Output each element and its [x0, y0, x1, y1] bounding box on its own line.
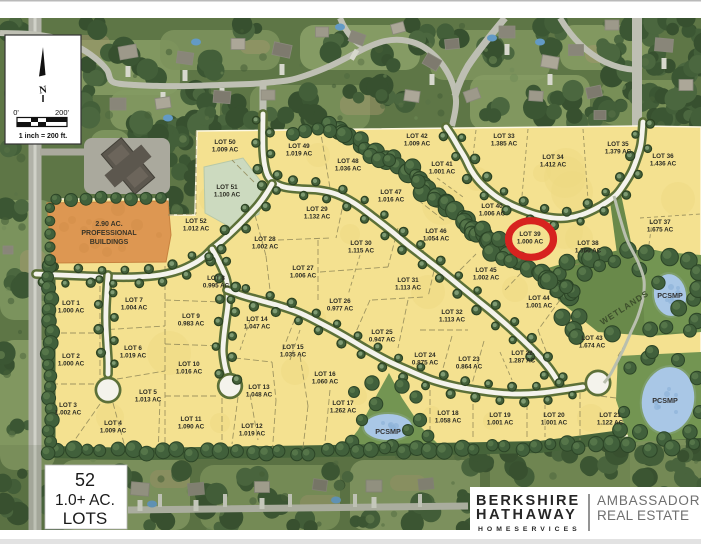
- svg-text:1.006 AC: 1.006 AC: [479, 211, 506, 218]
- svg-text:LOT 6: LOT 6: [124, 345, 142, 352]
- svg-text:0.977 AC: 0.977 AC: [327, 306, 354, 313]
- svg-text:LOT 48: LOT 48: [337, 158, 359, 165]
- svg-text:LOT 4: LOT 4: [104, 420, 122, 427]
- svg-text:LOT 19: LOT 19: [489, 412, 511, 419]
- svg-text:LOT 16: LOT 16: [314, 371, 336, 378]
- svg-text:LOTS: LOTS: [63, 509, 107, 528]
- svg-text:LOT 3: LOT 3: [59, 402, 77, 409]
- svg-text:LOT 34: LOT 34: [542, 154, 564, 161]
- svg-text:LOT 5: LOT 5: [139, 389, 157, 396]
- svg-text:LOT 37: LOT 37: [649, 219, 671, 226]
- svg-text:LOT 13: LOT 13: [248, 384, 270, 391]
- svg-text:1.002 AC: 1.002 AC: [55, 410, 82, 417]
- svg-text:1.412 AC: 1.412 AC: [540, 162, 567, 169]
- svg-text:1.100 AC: 1.100 AC: [214, 192, 241, 199]
- svg-text:1.002 AC: 1.002 AC: [473, 275, 500, 282]
- svg-text:52: 52: [75, 470, 95, 490]
- svg-text:1 inch = 200 ft.: 1 inch = 200 ft.: [19, 133, 67, 140]
- svg-text:1.016 AC: 1.016 AC: [176, 369, 203, 376]
- svg-text:1.002 AC: 1.002 AC: [252, 244, 279, 251]
- svg-text:1.009 AC: 1.009 AC: [100, 428, 127, 435]
- svg-text:1.019 AC: 1.019 AC: [120, 353, 147, 360]
- svg-text:LOT 30: LOT 30: [350, 240, 372, 247]
- svg-text:1.132 AC: 1.132 AC: [304, 214, 331, 221]
- svg-text:1.122 AC: 1.122 AC: [597, 420, 624, 427]
- svg-text:0.983 AC: 0.983 AC: [178, 321, 205, 328]
- svg-text:LOT 28: LOT 28: [254, 236, 276, 243]
- svg-text:1.674 AC: 1.674 AC: [579, 343, 606, 350]
- svg-text:LOT 33: LOT 33: [493, 133, 515, 140]
- svg-text:1.385 AC: 1.385 AC: [491, 141, 518, 148]
- svg-text:1.016 AC: 1.016 AC: [378, 197, 405, 204]
- svg-text:LOT 1: LOT 1: [62, 300, 80, 307]
- svg-text:LOT 21: LOT 21: [599, 412, 621, 419]
- svg-text:1.019 AC: 1.019 AC: [239, 431, 266, 438]
- svg-text:LOT 50: LOT 50: [214, 139, 236, 146]
- svg-text:1.012 AC: 1.012 AC: [183, 226, 210, 233]
- svg-text:1.004 AC: 1.004 AC: [121, 305, 148, 312]
- svg-text:1.0+ AC.: 1.0+ AC.: [55, 492, 115, 509]
- svg-text:1.009 AC: 1.009 AC: [404, 141, 431, 148]
- svg-text:1.054 AC: 1.054 AC: [423, 236, 450, 243]
- svg-text:AMBASSADOR: AMBASSADOR: [597, 493, 700, 508]
- svg-text:LOT 45: LOT 45: [475, 267, 497, 274]
- svg-text:LOT 51: LOT 51: [216, 184, 238, 191]
- svg-text:LOT 14: LOT 14: [246, 316, 268, 323]
- svg-text:LOT 10: LOT 10: [178, 361, 200, 368]
- svg-text:200': 200': [55, 108, 70, 117]
- svg-text:LOT 47: LOT 47: [380, 189, 402, 196]
- svg-text:HATHAWAY: HATHAWAY: [476, 507, 577, 523]
- svg-text:1.001 AC: 1.001 AC: [487, 420, 514, 427]
- svg-text:1.060 AC: 1.060 AC: [312, 379, 339, 386]
- svg-text:PCSMP: PCSMP: [375, 427, 401, 436]
- svg-text:REAL ESTATE: REAL ESTATE: [597, 508, 689, 523]
- svg-text:LOT 36: LOT 36: [652, 153, 674, 160]
- svg-text:1.113 AC: 1.113 AC: [395, 285, 421, 292]
- svg-text:1.287 AC: 1.287 AC: [509, 358, 536, 365]
- svg-text:LOT 26: LOT 26: [329, 298, 351, 305]
- svg-text:0.864 AC: 0.864 AC: [456, 364, 483, 371]
- svg-text:LOT 43: LOT 43: [581, 335, 603, 342]
- svg-text:1.013 AC: 1.013 AC: [135, 397, 162, 404]
- svg-text:1.113 AC: 1.113 AC: [439, 317, 465, 324]
- svg-text:1.001 AC: 1.001 AC: [429, 169, 456, 176]
- svg-text:LOT 49: LOT 49: [288, 143, 310, 150]
- svg-text:1.379 AC: 1.379 AC: [605, 149, 632, 156]
- svg-text:LOT 11: LOT 11: [181, 416, 202, 423]
- svg-text:1.036 AC: 1.036 AC: [335, 166, 362, 173]
- svg-text:LOT 41: LOT 41: [431, 161, 453, 168]
- svg-text:LOT 8: LOT 8: [207, 275, 225, 282]
- svg-text:1.001 AC: 1.001 AC: [526, 303, 553, 310]
- svg-text:LOT 22: LOT 22: [511, 350, 533, 357]
- svg-text:1.058 AC: 1.058 AC: [435, 418, 462, 425]
- svg-text:LOT 52: LOT 52: [185, 218, 207, 225]
- svg-text:1.000 AC: 1.000 AC: [58, 308, 85, 315]
- svg-text:2.90 AC.: 2.90 AC.: [95, 221, 122, 228]
- svg-text:PCSMP: PCSMP: [657, 291, 683, 300]
- svg-text:LOT 35: LOT 35: [607, 141, 629, 148]
- svg-text:0.947 AC: 0.947 AC: [369, 337, 396, 344]
- svg-text:LOT 31: LOT 31: [397, 277, 419, 284]
- svg-text:1.675 AC: 1.675 AC: [647, 227, 674, 234]
- svg-text:1.000 AC: 1.000 AC: [58, 361, 85, 368]
- svg-text:LOT 7: LOT 7: [125, 297, 143, 304]
- svg-text:1.000 AC: 1.000 AC: [517, 239, 544, 246]
- svg-text:BUILDINGS: BUILDINGS: [90, 239, 129, 246]
- svg-text:LOT 38: LOT 38: [577, 240, 599, 247]
- svg-text:PCSMP: PCSMP: [652, 396, 678, 405]
- svg-text:1.115 AC: 1.115 AC: [348, 248, 374, 255]
- svg-text:LOT 42: LOT 42: [406, 133, 428, 140]
- svg-text:0': 0': [13, 108, 19, 117]
- svg-text:LOT 20: LOT 20: [543, 412, 565, 419]
- svg-text:LOT 24: LOT 24: [414, 352, 436, 359]
- svg-text:0.995 AC: 0.995 AC: [203, 283, 230, 290]
- svg-text:HOMESERVICES: HOMESERVICES: [478, 526, 581, 533]
- svg-text:LOT 27: LOT 27: [292, 265, 314, 272]
- svg-text:1.048 AC: 1.048 AC: [246, 392, 273, 399]
- svg-text:1.035 AC: 1.035 AC: [280, 352, 307, 359]
- svg-text:1.262 AC: 1.262 AC: [330, 408, 357, 415]
- svg-text:1.006 AC: 1.006 AC: [290, 273, 317, 280]
- svg-text:LOT 23: LOT 23: [458, 356, 480, 363]
- svg-text:LOT 17: LOT 17: [332, 400, 354, 407]
- svg-text:1.019 AC: 1.019 AC: [286, 151, 313, 158]
- svg-text:LOT 29: LOT 29: [306, 206, 328, 213]
- svg-text:PROFESSIONAL: PROFESSIONAL: [81, 230, 137, 237]
- svg-text:LOT 39: LOT 39: [519, 231, 541, 238]
- svg-text:LOT 40: LOT 40: [481, 203, 503, 210]
- svg-text:LOT 12: LOT 12: [241, 423, 263, 430]
- svg-text:1.436 AC: 1.436 AC: [650, 161, 677, 168]
- svg-text:1.360 AC: 1.360 AC: [575, 248, 602, 255]
- svg-text:LOT 9: LOT 9: [182, 313, 200, 320]
- svg-text:LOT 32: LOT 32: [441, 309, 463, 316]
- svg-text:0.875 AC: 0.875 AC: [412, 360, 439, 367]
- svg-text:LOT 18: LOT 18: [437, 410, 459, 417]
- svg-text:LOT 15: LOT 15: [282, 344, 304, 351]
- svg-text:LOT 44: LOT 44: [528, 295, 550, 302]
- svg-text:1.047 AC: 1.047 AC: [244, 324, 271, 331]
- svg-text:1.090 AC: 1.090 AC: [178, 424, 205, 431]
- svg-text:LOT 25: LOT 25: [371, 329, 393, 336]
- svg-text:LOT 46: LOT 46: [425, 228, 447, 235]
- svg-text:1.001 AC: 1.001 AC: [541, 420, 568, 427]
- svg-text:LOT 2: LOT 2: [62, 353, 80, 360]
- svg-text:1.009 AC: 1.009 AC: [212, 147, 239, 154]
